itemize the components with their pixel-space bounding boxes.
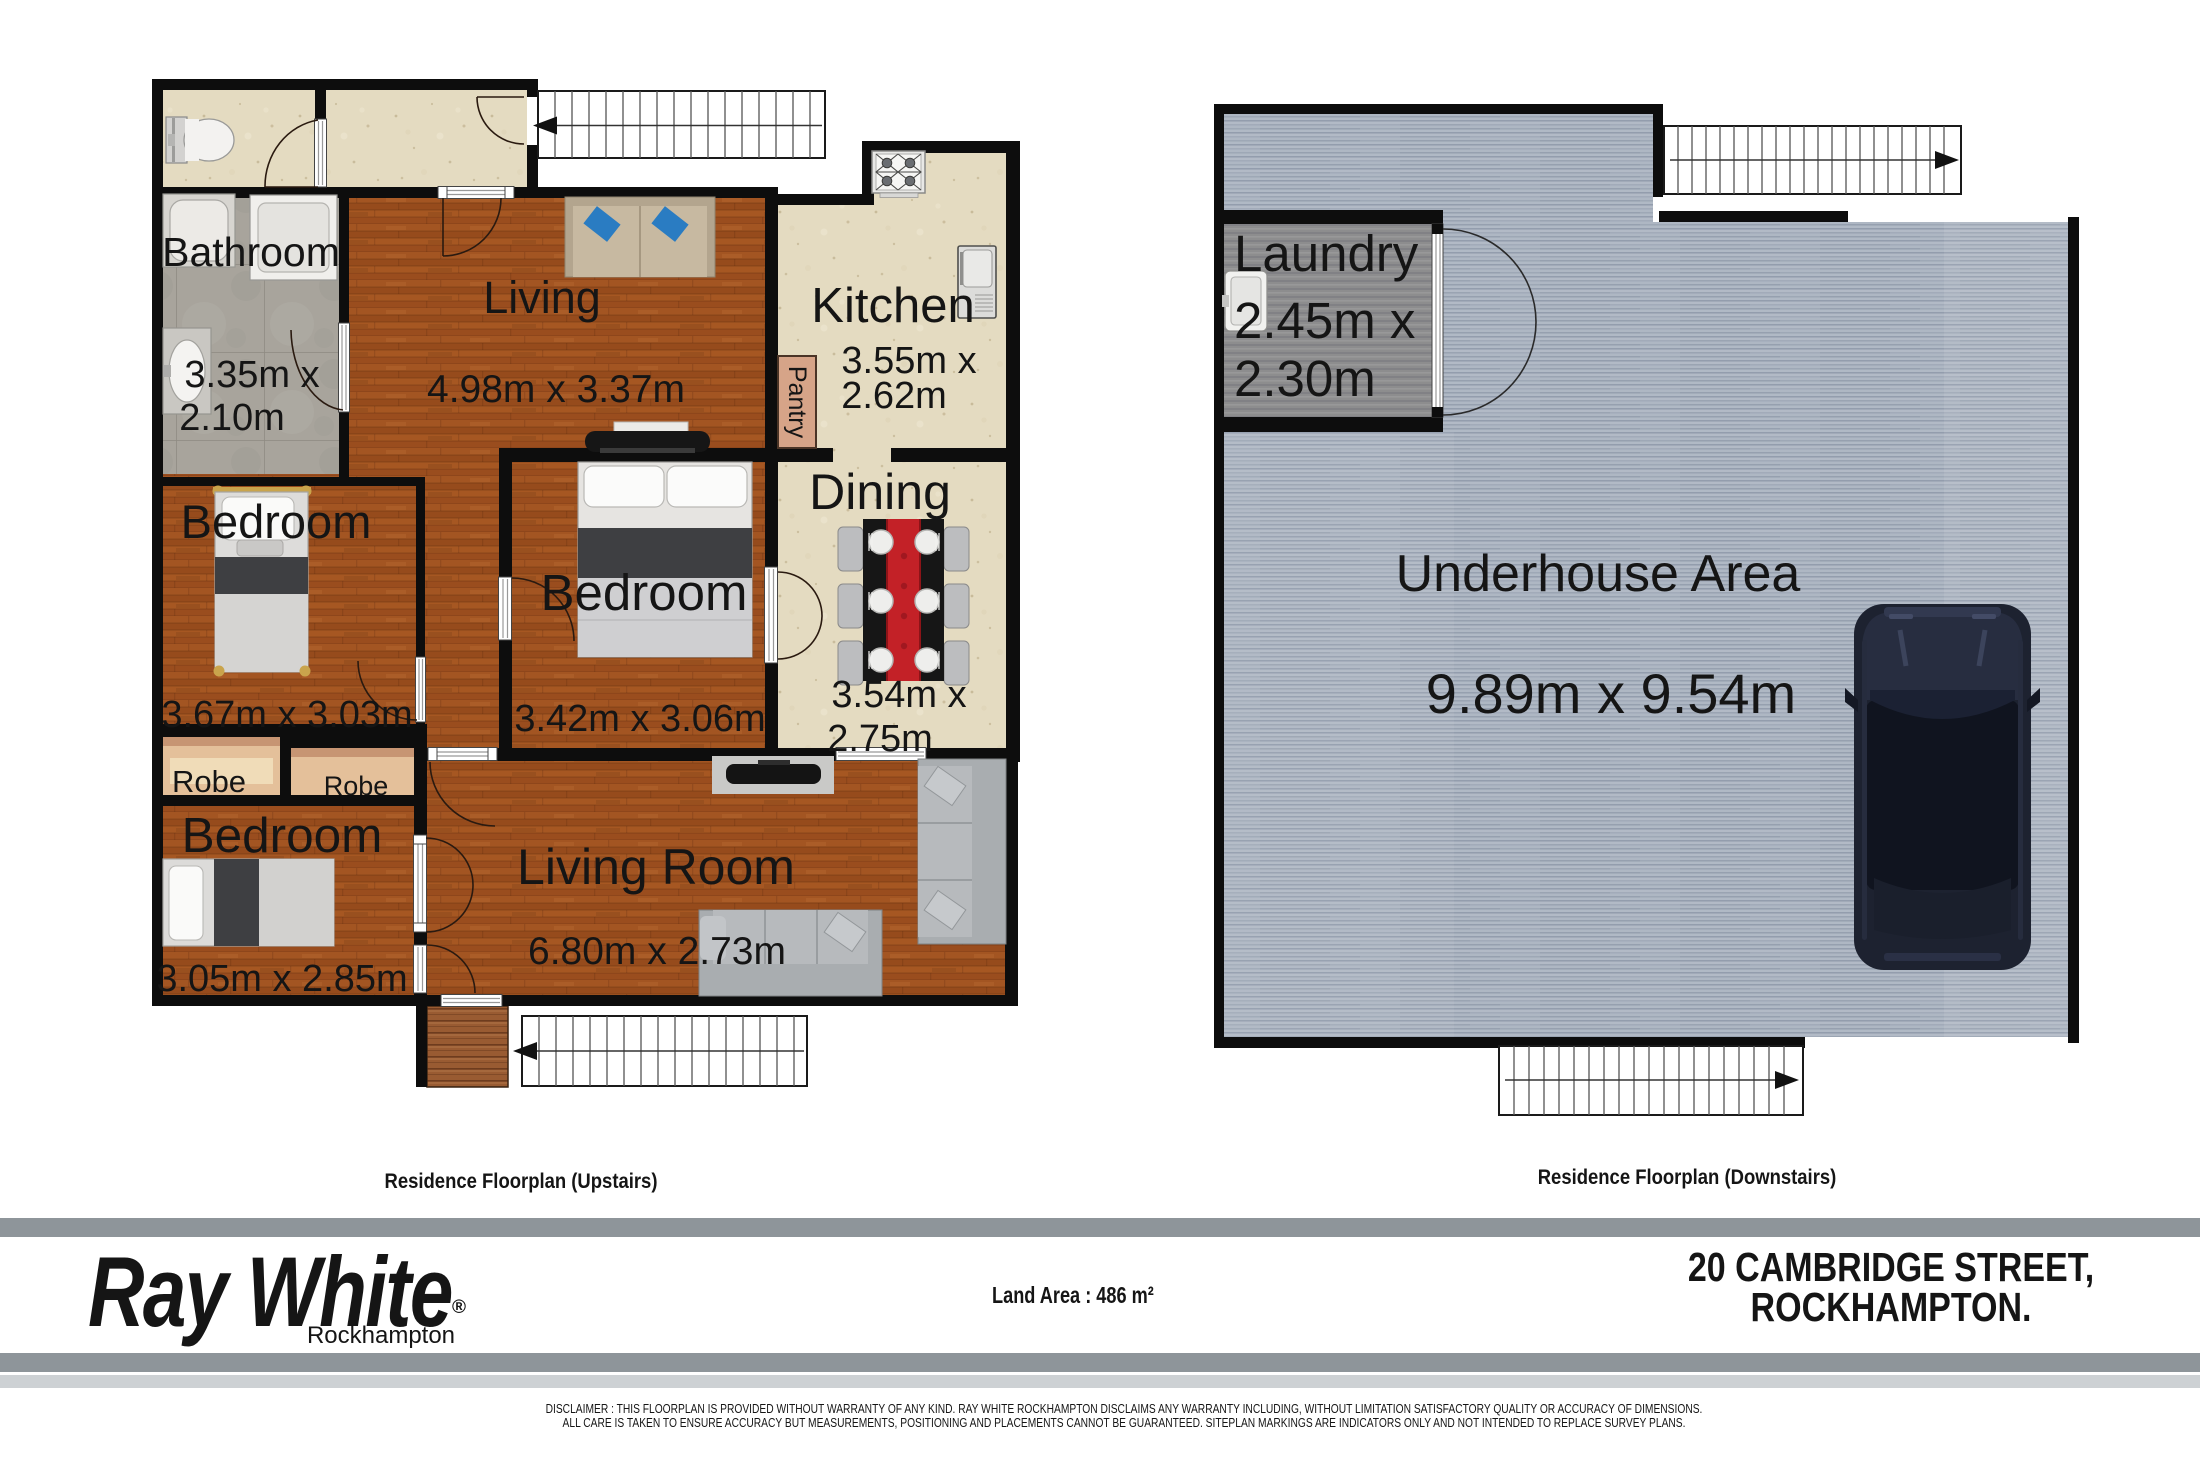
svg-text:ALL CARE IS TAKEN TO ENSURE AC: ALL CARE IS TAKEN TO ENSURE ACCURACY BUT… <box>563 1417 1686 1430</box>
svg-text:3.35m x: 3.35m x <box>184 354 319 396</box>
svg-text:3.54m x: 3.54m x <box>831 674 966 716</box>
svg-text:ROCKHAMPTON.: ROCKHAMPTON. <box>1751 1284 2032 1330</box>
svg-text:Bedroom: Bedroom <box>181 495 372 548</box>
svg-text:Land Area : 486 m²: Land Area : 486 m² <box>992 1283 1154 1309</box>
svg-text:Living: Living <box>483 272 601 323</box>
svg-text:Robe: Robe <box>324 771 389 801</box>
svg-text:Living Room: Living Room <box>517 839 795 895</box>
svg-text:2.45m x: 2.45m x <box>1234 292 1415 349</box>
svg-text:2.62m: 2.62m <box>841 375 947 417</box>
svg-text:3.05m x 2.85m: 3.05m x 2.85m <box>156 958 407 1000</box>
svg-text:Bedroom: Bedroom <box>541 564 748 621</box>
svg-text:Underhouse Area: Underhouse Area <box>1396 545 1801 603</box>
svg-text:®: ® <box>452 1297 466 1318</box>
svg-text:2.75m: 2.75m <box>827 718 933 760</box>
svg-text:DISCLAIMER : THIS FLOORPLAN IS: DISCLAIMER : THIS FLOORPLAN IS PROVIDED … <box>546 1403 1703 1416</box>
svg-text:20 CAMBRIDGE STREET,: 20 CAMBRIDGE STREET, <box>1688 1244 2094 1290</box>
svg-text:Dining: Dining <box>809 464 951 520</box>
svg-text:Rockhampton: Rockhampton <box>307 1322 455 1349</box>
svg-text:4.98m x 3.37m: 4.98m x 3.37m <box>427 368 685 411</box>
svg-text:Residence Floorplan (Upstairs): Residence Floorplan (Upstairs) <box>385 1170 658 1193</box>
svg-text:9.89m x 9.54m: 9.89m x 9.54m <box>1426 662 1796 725</box>
svg-text:Bedroom: Bedroom <box>182 808 383 863</box>
svg-text:Pantry: Pantry <box>783 366 811 439</box>
svg-text:Bathroom: Bathroom <box>162 229 340 275</box>
svg-text:3.42m x 3.06m: 3.42m x 3.06m <box>514 698 765 740</box>
svg-text:Residence Floorplan (Downstair: Residence Floorplan (Downstairs) <box>1538 1166 1837 1189</box>
svg-text:2.10m: 2.10m <box>179 397 285 439</box>
svg-text:Robe: Robe <box>172 764 246 799</box>
svg-text:Laundry: Laundry <box>1234 225 1419 282</box>
svg-text:2.30m: 2.30m <box>1234 350 1376 407</box>
svg-text:3.67m x 3.03m: 3.67m x 3.03m <box>161 694 412 736</box>
svg-text:6.80m x 2.73m: 6.80m x 2.73m <box>528 930 786 973</box>
svg-text:Kitchen: Kitchen <box>811 279 974 333</box>
